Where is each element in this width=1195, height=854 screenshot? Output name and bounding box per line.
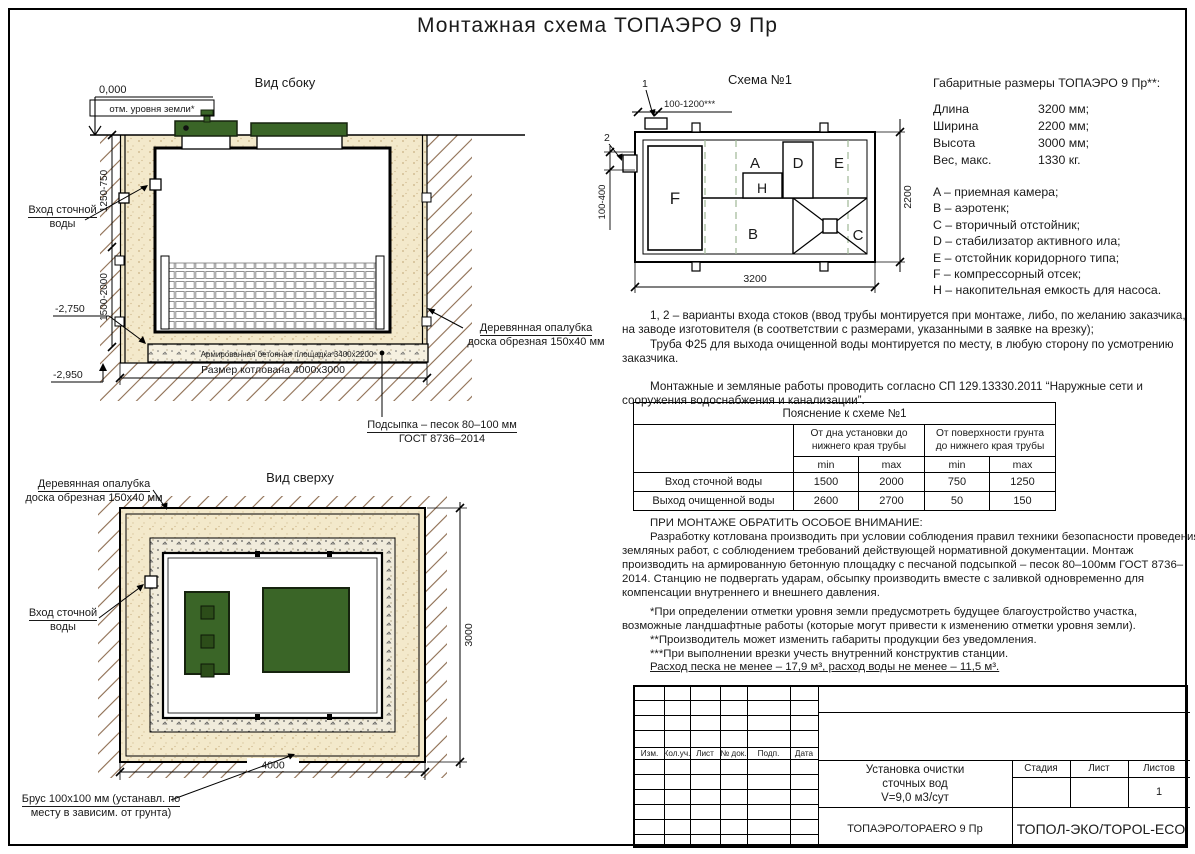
grid-line — [635, 834, 818, 835]
row-label: Выход очищенной воды — [634, 492, 794, 511]
spec-width: Ширина 2200 мм; — [933, 118, 1189, 135]
sheets-header: Листов — [1128, 760, 1190, 777]
max-header: max — [859, 457, 925, 473]
grid-line — [635, 774, 818, 775]
side-inlet-label: Вход сточной воды — [15, 204, 110, 232]
beam-label: Брус 100x100 мм (устанавл. по месту в за… — [10, 793, 192, 821]
spec-height-label: Высота — [933, 135, 1038, 152]
page-title: Монтажная схема ТОПАЭРО 9 Пр — [0, 14, 1195, 38]
scheme-title: Схема №1 — [700, 72, 820, 87]
grid-line — [635, 804, 818, 805]
explanation-empty-cell — [634, 425, 794, 473]
col-koluch: Кол.уч. — [664, 747, 690, 759]
side-view-title: Вид сбоку — [225, 75, 345, 90]
spec-width-label: Ширина — [933, 118, 1038, 135]
col-ndok: № док. — [720, 747, 747, 759]
grid-line — [690, 687, 691, 846]
cell-value: 2700 — [859, 492, 925, 511]
cell-value: 150 — [990, 492, 1056, 511]
row-label: Вход сточной воды — [634, 473, 794, 492]
max-header: max — [990, 457, 1056, 473]
grid-line — [747, 687, 748, 846]
top-formwork-label: Деревянная опалубка доска обрезная 150x4… — [14, 478, 174, 506]
col-podp: Подп. — [747, 747, 790, 759]
note-variants: 1, 2 – варианты входа стоков (ввод трубы… — [622, 309, 1195, 338]
sheet-header: Лист — [1070, 760, 1128, 777]
spec-height: Высота 3000 мм; — [933, 135, 1189, 152]
overall-dimensions-block: Габаритные размеры ТОПАЭРО 9 Пр**: Длина… — [933, 76, 1189, 299]
top-inlet-label-line1: Вход сточной — [29, 607, 97, 621]
legend-item: B – аэротенк; — [933, 200, 1189, 216]
grid-line — [635, 715, 818, 716]
notes-block: 1, 2 – варианты входа стоков (ввод трубы… — [622, 309, 1195, 408]
cell-value: 1500 — [794, 473, 859, 492]
spec-length: Длина 3200 мм; — [933, 101, 1189, 118]
cell-value: 50 — [925, 492, 990, 511]
explanation-table-title: Пояснение к схеме №1 — [634, 403, 1056, 425]
side-formwork-label: Деревянная опалубка доска обрезная 150x4… — [455, 322, 617, 350]
top-view-title: Вид сверху — [240, 470, 360, 485]
grid-line — [720, 687, 721, 846]
spec-length-label: Длина — [933, 101, 1038, 118]
cell-value: 750 — [925, 473, 990, 492]
attention-heading: ПРИ МОНТАЖЕ ОБРАТИТЬ ОСОБОЕ ВНИМАНИЕ: — [622, 517, 1195, 531]
grid-line — [635, 819, 818, 820]
attention-note-2: **Производитель может изменить габариты … — [622, 634, 1195, 648]
cell-value: 2000 — [859, 473, 925, 492]
spec-length-value: 3200 мм; — [1038, 101, 1089, 118]
top-inlet-label: Вход сточной воды — [18, 607, 108, 635]
min-header: min — [925, 457, 990, 473]
spec-weight-label: Вес, макс. — [933, 152, 1038, 169]
attention-note-1: *При определении отметки уровня земли пр… — [622, 606, 1195, 634]
spec-weight-value: 1330 кг. — [1038, 152, 1081, 169]
dimensions-heading: Габаритные размеры ТОПАЭРО 9 Пр**: — [933, 76, 1189, 90]
side-formwork-label-line1: Деревянная опалубка — [480, 322, 592, 336]
grid-line — [635, 759, 818, 760]
col-data: Дата — [790, 747, 818, 759]
attention-body: Разработку котлована производить при усл… — [622, 531, 1195, 601]
cell-value: 2600 — [794, 492, 859, 511]
attention-block: ПРИ МОНТАЖЕ ОБРАТИТЬ ОСОБОЕ ВНИМАНИЕ: Ра… — [622, 517, 1195, 662]
attention-note-3: ***При выполнении врезки учесть внутренн… — [622, 648, 1195, 662]
table-row: Выход очищенной воды 2600 2700 50 150 — [634, 492, 1056, 511]
spec-weight: Вес, макс. 1330 кг. — [933, 152, 1189, 169]
top-formwork-label-line2: доска обрезная 150x40 мм — [25, 492, 162, 504]
legend-item: A – приемная камера; — [933, 184, 1189, 200]
grid-line — [664, 687, 665, 846]
side-formwork-label-line2: доска обрезная 150x40 мм — [467, 336, 604, 348]
spec-height-value: 3000 мм; — [1038, 135, 1089, 152]
legend-item: F – компрессорный отсек; — [933, 266, 1189, 282]
grid-line — [790, 687, 791, 846]
legend-item: D – стабилизатор активного ила; — [933, 233, 1189, 249]
consumption-note: Расход песка не менее – 17,9 м³, расход … — [650, 661, 999, 673]
drawing-sheet: { "sheet": { "title": "Монтажная схема Т… — [0, 0, 1195, 854]
side-inlet-label-line2: воды — [50, 218, 76, 230]
table-row: Вход сточной воды 1500 2000 750 1250 — [634, 473, 1056, 492]
stage-header: Стадия — [1012, 760, 1070, 777]
company-name: ТОПОЛ-ЭКО/TOPOL-ECO — [1012, 807, 1190, 850]
col-izm: Изм. — [635, 747, 664, 759]
col-list: Лист — [690, 747, 720, 759]
note-outlet-pipe: Труба Ф25 для выхода очищенной воды монт… — [622, 338, 1195, 367]
legend-item: C – вторичный отстойник; — [933, 217, 1189, 233]
grid-line — [818, 712, 1190, 713]
model-name: ТОПАЭРО/TOPAERO 9 Пр — [818, 807, 1012, 850]
legend-item: E – отстойник коридорного типа; — [933, 250, 1189, 266]
bedding-label-line2: ГОСТ 8736–2014 — [399, 433, 485, 445]
column-group-bottom: От дна установки до нижнего края трубы — [794, 425, 925, 457]
min-header: min — [794, 457, 859, 473]
compartment-legend: A – приемная камера; B – аэротенк; C – в… — [933, 184, 1189, 299]
title-block: Изм. Кол.уч. Лист № док. Подп. Дата Уста… — [633, 685, 1188, 848]
grid-line — [635, 700, 818, 701]
beam-label-line1: Брус 100x100 мм (устанавл. по — [22, 793, 181, 807]
grid-line — [635, 789, 818, 790]
legend-item: H – накопительная емкость для насоса. — [933, 282, 1189, 298]
top-formwork-label-line1: Деревянная опалубка — [38, 478, 150, 492]
document-title-line3: V=9,0 м3/сут — [881, 791, 949, 805]
column-group-surface: От поверхности грунта до нижнего края тр… — [925, 425, 1056, 457]
grid-line — [635, 730, 818, 731]
spec-width-value: 2200 мм; — [1038, 118, 1089, 135]
sheets-count: 1 — [1128, 777, 1190, 807]
top-inlet-label-line2: воды — [50, 621, 76, 633]
bedding-label-line1: Подсыпка – песок 80–100 мм — [367, 419, 517, 433]
document-title-line1: Установка очистки — [866, 763, 965, 777]
document-title-line2: сточных вод — [882, 777, 947, 791]
explanation-table: Пояснение к схеме №1 От дна установки до… — [633, 402, 1056, 511]
bedding-label: Подсыпка – песок 80–100 мм ГОСТ 8736–201… — [358, 419, 526, 447]
beam-label-line2: месту в зависим. от грунта) — [31, 807, 172, 819]
document-title: Установка очистки сточных вод V=9,0 м3/с… — [818, 760, 1012, 807]
cell-value: 1250 — [990, 473, 1056, 492]
side-inlet-label-line1: Вход сточной — [28, 204, 96, 218]
